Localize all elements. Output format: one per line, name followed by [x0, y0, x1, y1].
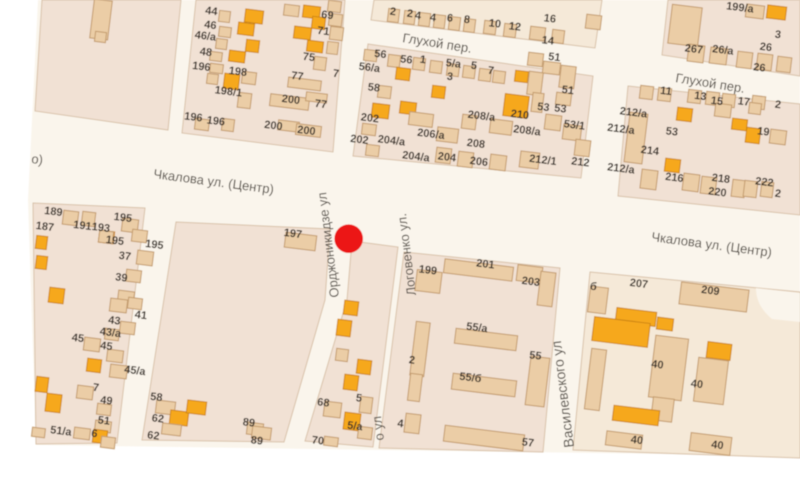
svg-text:195: 195	[105, 234, 125, 248]
svg-text:45: 45	[71, 332, 85, 345]
svg-text:204: 204	[437, 150, 458, 164]
svg-text:40: 40	[630, 434, 644, 447]
svg-text:214: 214	[640, 144, 661, 158]
svg-text:68: 68	[317, 396, 331, 409]
svg-text:220: 220	[708, 185, 728, 199]
svg-text:17: 17	[737, 95, 751, 108]
svg-text:48: 48	[199, 46, 213, 59]
svg-text:11: 11	[659, 85, 672, 98]
svg-text:40: 40	[690, 378, 704, 391]
svg-text:51: 51	[561, 84, 575, 97]
svg-text:202: 202	[360, 111, 380, 125]
svg-text:53: 53	[537, 101, 551, 114]
svg-text:197: 197	[283, 227, 303, 241]
svg-text:44: 44	[205, 5, 219, 19]
svg-text:195: 195	[145, 238, 165, 252]
svg-text:56: 56	[400, 53, 414, 66]
svg-text:187: 187	[35, 220, 55, 234]
svg-text:77: 77	[291, 70, 305, 83]
svg-text:13: 13	[694, 90, 708, 103]
svg-text:202: 202	[350, 133, 370, 147]
svg-text:16: 16	[543, 12, 557, 25]
svg-text:58: 58	[367, 81, 381, 94]
svg-text:216: 216	[665, 171, 685, 185]
svg-text:77: 77	[314, 98, 328, 111]
svg-text:199: 199	[418, 263, 438, 277]
svg-text:о ул: о ул	[369, 415, 387, 441]
svg-text:218: 218	[711, 172, 731, 186]
svg-text:71: 71	[317, 25, 331, 38]
svg-text:89: 89	[250, 434, 264, 447]
svg-text:26: 26	[753, 61, 767, 74]
svg-text:70: 70	[311, 434, 325, 447]
svg-text:222: 222	[755, 175, 775, 189]
svg-text:198: 198	[228, 65, 248, 79]
svg-text:267: 267	[684, 42, 704, 56]
svg-text:193: 193	[91, 221, 111, 235]
svg-text:39: 39	[115, 271, 129, 284]
svg-text:41: 41	[134, 309, 148, 322]
svg-text:12: 12	[508, 20, 522, 33]
svg-text:45: 45	[100, 340, 114, 353]
svg-text:40: 40	[651, 358, 665, 371]
svg-text:189: 189	[44, 205, 64, 219]
svg-text:5/а: 5/а	[347, 420, 365, 434]
svg-text:37: 37	[118, 250, 132, 263]
svg-text:75: 75	[302, 51, 316, 64]
svg-text:14: 14	[541, 34, 555, 48]
svg-text:210: 210	[510, 108, 530, 122]
svg-text:203: 203	[521, 275, 541, 289]
svg-text:200: 200	[297, 124, 317, 138]
svg-text:212: 212	[571, 155, 591, 169]
svg-text:53: 53	[554, 102, 568, 115]
svg-text:57: 57	[521, 436, 535, 449]
svg-text:53: 53	[665, 125, 679, 138]
svg-text:5/а: 5/а	[445, 57, 463, 71]
svg-text:58: 58	[150, 391, 164, 404]
svg-text:10: 10	[488, 17, 502, 30]
svg-text:55: 55	[529, 349, 543, 362]
svg-text:201: 201	[476, 257, 496, 271]
svg-text:40: 40	[711, 439, 725, 452]
svg-text:15: 15	[710, 95, 724, 108]
svg-text:62: 62	[151, 412, 165, 425]
svg-text:196: 196	[184, 110, 204, 124]
svg-text:208: 208	[466, 137, 486, 151]
svg-text:195: 195	[113, 211, 133, 225]
svg-text:200: 200	[264, 119, 284, 133]
svg-text:51: 51	[97, 414, 111, 427]
svg-text:89: 89	[242, 416, 256, 429]
svg-text:19: 19	[757, 125, 771, 138]
svg-text:191: 191	[73, 219, 93, 233]
svg-text:209: 209	[701, 284, 721, 298]
svg-text:26: 26	[759, 41, 773, 54]
svg-text:43: 43	[108, 314, 122, 327]
svg-text:56: 56	[374, 48, 388, 61]
svg-text:196: 196	[206, 114, 226, 128]
svg-text:49: 49	[100, 394, 114, 407]
svg-text:о): о)	[31, 151, 44, 167]
svg-text:51: 51	[548, 51, 562, 64]
svg-text:206: 206	[469, 155, 489, 169]
svg-text:196: 196	[192, 60, 212, 74]
svg-text:207: 207	[629, 277, 649, 291]
svg-text:69: 69	[321, 9, 335, 22]
svg-text:62: 62	[147, 429, 161, 442]
svg-text:200: 200	[281, 93, 301, 107]
